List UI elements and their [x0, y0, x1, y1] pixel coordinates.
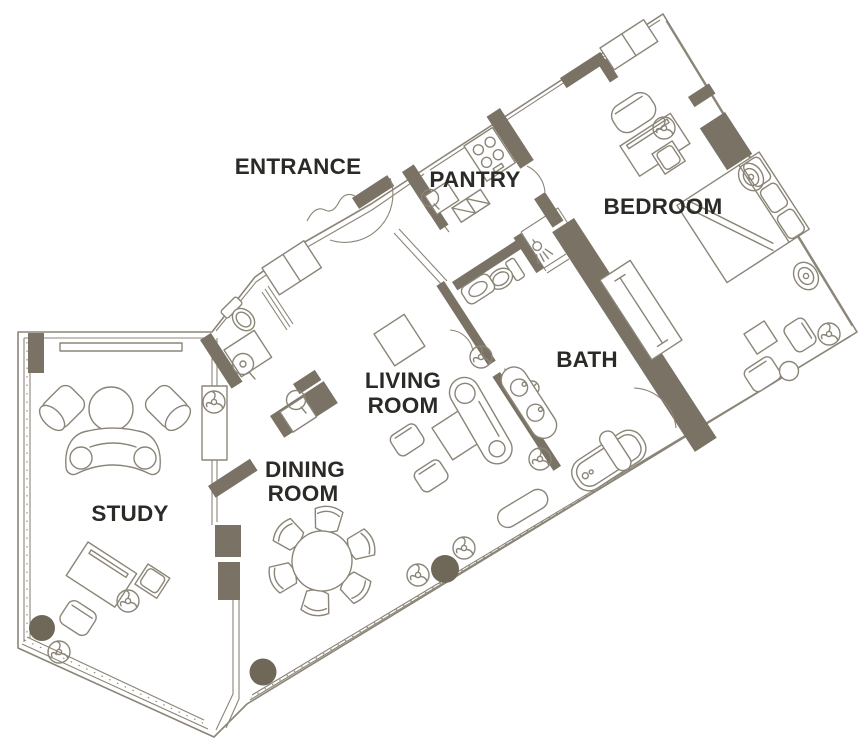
column-marker [29, 615, 55, 641]
study-desk [66, 542, 136, 607]
side-table [374, 314, 425, 365]
room-study [35, 343, 227, 638]
label-living-2: ROOM [368, 393, 439, 418]
label-study: STUDY [91, 501, 168, 526]
label-pantry: PANTRY [429, 167, 520, 192]
column-marker [250, 659, 277, 686]
round-side-table [780, 362, 799, 381]
room-entrance [220, 241, 321, 379]
window-sill [60, 343, 182, 351]
armchair [57, 598, 99, 638]
wardrobe [600, 20, 658, 70]
label-dining-1: DINING [265, 457, 345, 482]
label-bath: BATH [556, 347, 618, 372]
desk-chair [135, 564, 170, 598]
dining-set [260, 499, 384, 623]
dishwasher [452, 189, 490, 222]
floor-plan: ENTRANCE PANTRY BEDROOM LIVING ROOM BATH… [0, 0, 863, 748]
column-marker [431, 555, 459, 583]
armchair [388, 422, 426, 458]
side-table [744, 321, 777, 354]
table-lamp-icon [788, 258, 823, 295]
entrance-closet [262, 241, 321, 295]
barrel-chair [142, 382, 195, 435]
label-living-1: LIVING [365, 368, 441, 393]
label-bedroom: BEDROOM [604, 194, 723, 219]
study-round-table [89, 387, 133, 431]
label-dining-2: ROOM [268, 481, 339, 506]
armchair [782, 316, 818, 354]
armchair [412, 458, 450, 494]
barrel-chair [35, 382, 88, 435]
curved-sofa [66, 428, 161, 475]
armchair [742, 355, 783, 394]
label-entrance: ENTRANCE [235, 154, 362, 179]
